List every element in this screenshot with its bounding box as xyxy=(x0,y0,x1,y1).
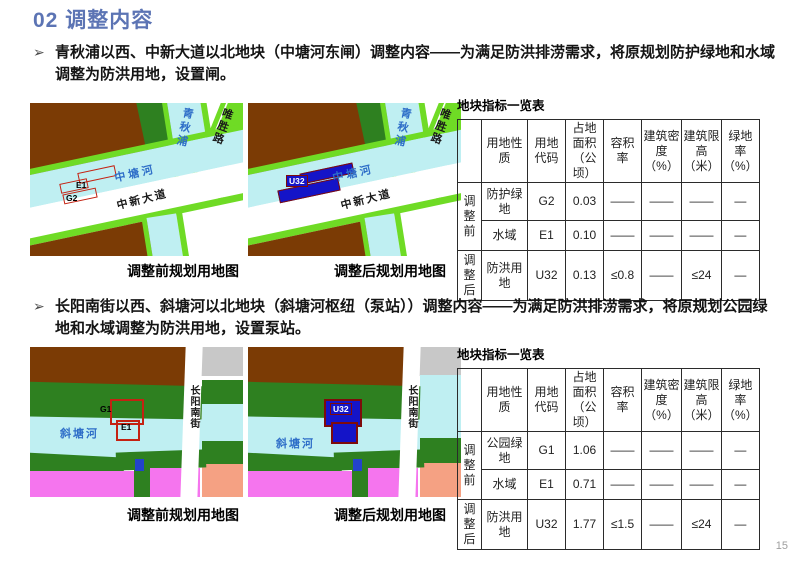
parcel-label-g2: G2 xyxy=(66,194,77,203)
table-cell: —— xyxy=(642,183,682,221)
table-cell: 0.03 xyxy=(566,183,604,221)
map-layer-cyan-right xyxy=(420,375,461,440)
table-cell: U32 xyxy=(528,251,566,301)
table-title: 地块指标一览表 xyxy=(457,95,795,114)
table-cell: —— xyxy=(642,251,682,301)
map-layer-gray xyxy=(198,347,243,376)
table-cell: —— xyxy=(604,183,642,221)
table-row: 调整前 公园绿地 G1 1.06 —— —— —— — xyxy=(458,432,760,470)
table-cell: G2 xyxy=(528,183,566,221)
table-cell: 公园绿地 xyxy=(482,432,528,470)
parcel-label-g1: G1 xyxy=(100,405,111,414)
map-layer-magenta xyxy=(248,471,356,497)
table-header: 占地面积（公顷） xyxy=(566,369,604,432)
arrow-bullet-icon: ➢ xyxy=(33,42,55,86)
table-header: 用地性质 xyxy=(482,120,528,183)
table-cell: 防洪用地 xyxy=(482,251,528,301)
table-header: 建筑限高（米） xyxy=(682,369,722,432)
map-layer-salmon xyxy=(202,464,243,497)
section1-text: 青秋浦以西、中新大道以北地块（中塘河东闸）调整内容——为满足防洪排涝需求，将原规… xyxy=(55,42,778,86)
river-label-xietanghe: 斜塘河 xyxy=(60,425,99,441)
indicator-table-district1: 地块指标一览表 用地性质 用地代码 占地面积（公顷） 容积率 建筑密度（%） 建… xyxy=(457,95,795,301)
row-group-label: 调整前 xyxy=(458,432,482,500)
table-title: 地块指标一览表 xyxy=(457,344,795,363)
indicator-table-district2: 地块指标一览表 用地性质 用地代码 占地面积（公顷） 容积率 建筑密度（%） 建… xyxy=(457,344,795,550)
arrow-bullet-icon: ➢ xyxy=(33,296,55,340)
table-header: 用地代码 xyxy=(528,120,566,183)
parcel-label-e1: E1 xyxy=(121,423,131,432)
parcel-badge-u32: U32 xyxy=(330,403,352,415)
page-number: 15 xyxy=(776,540,788,552)
table-cell: 0.13 xyxy=(566,251,604,301)
parcel-badge-u32: U32 xyxy=(286,175,308,187)
table-cell: —— xyxy=(604,221,642,251)
table-cell: — xyxy=(722,432,760,470)
road-label-changyangnanjie: 长阳南街 xyxy=(186,385,201,429)
map-layer-salmon xyxy=(420,463,461,497)
map-layer-cyan-right xyxy=(202,404,243,444)
parcel-label-e1: E1 xyxy=(76,181,86,190)
table-cell: 水域 xyxy=(482,470,528,500)
table-cell: —— xyxy=(682,183,722,221)
indicator-table: 用地性质 用地代码 占地面积（公顷） 容积率 建筑密度（%） 建筑限高（米） 绿… xyxy=(457,119,760,301)
page-title: 02 调整内容 xyxy=(33,4,153,34)
section1-paragraph: ➢ 青秋浦以西、中新大道以北地块（中塘河东闸）调整内容——为满足防洪排涝需求，将… xyxy=(33,42,778,86)
map-canvas: E1 G2 青秋浦 唯胜路 中塘河 中新大道 xyxy=(30,103,243,256)
map-caption: 调整前规划用地图 xyxy=(30,261,243,281)
table-cell: —— xyxy=(642,470,682,500)
table-header: 容积率 xyxy=(604,120,642,183)
table-corner-cell xyxy=(458,120,482,183)
table-header: 建筑限高（米） xyxy=(682,120,722,183)
table-cell: —— xyxy=(642,500,682,550)
table-row: 水域 E1 0.71 —— —— —— — xyxy=(458,470,760,500)
table-header: 用地代码 xyxy=(528,369,566,432)
flood-parcel xyxy=(331,422,358,444)
table-cell: — xyxy=(722,500,760,550)
table-cell: ≤1.5 xyxy=(604,500,642,550)
table-cell: —— xyxy=(642,221,682,251)
map-after-district2: U32 斜塘河 长阳南街 调整后规划用地图 xyxy=(248,347,461,525)
row-group-label: 调整后 xyxy=(458,500,482,550)
map-caption: 调整后规划用地图 xyxy=(248,505,461,525)
map-canvas: U32 斜塘河 长阳南街 xyxy=(248,347,461,500)
map-caption: 调整后规划用地图 xyxy=(248,261,461,281)
row-group-label: 调整前 xyxy=(458,183,482,251)
table-cell: E1 xyxy=(528,221,566,251)
map-layer-magenta xyxy=(30,471,138,497)
table-cell: —— xyxy=(682,432,722,470)
table-cell: —— xyxy=(604,432,642,470)
table-cell: G1 xyxy=(528,432,566,470)
table-cell: 0.71 xyxy=(566,470,604,500)
table-header: 占地面积（公顷） xyxy=(566,120,604,183)
table-cell: ≤24 xyxy=(682,251,722,301)
section2-text: 长阳南街以西、斜塘河以北地块（斜塘河枢纽（泵站））调整内容——为满足防洪排涝需求… xyxy=(55,296,778,340)
table-cell: E1 xyxy=(528,470,566,500)
table-cell: — xyxy=(722,251,760,301)
table-cell: 1.77 xyxy=(566,500,604,550)
map-layer-gray xyxy=(416,347,461,376)
road-label-changyangnanjie: 长阳南街 xyxy=(404,385,419,429)
sluice-marker xyxy=(135,459,144,471)
slide: 02 调整内容 ➢ 青秋浦以西、中新大道以北地块（中塘河东闸）调整内容——为满足… xyxy=(0,0,800,566)
map-caption: 调整前规划用地图 xyxy=(30,505,243,525)
table-cell: —— xyxy=(682,221,722,251)
indicator-table: 用地性质 用地代码 占地面积（公顷） 容积率 建筑密度（%） 建筑限高（米） 绿… xyxy=(457,368,760,550)
table-corner-cell xyxy=(458,369,482,432)
map-before-district2: G1 E1 斜塘河 长阳南街 调整前规划用地图 xyxy=(30,347,243,525)
table-header: 容积率 xyxy=(604,369,642,432)
map-canvas: U32 青秋浦 唯胜路 中塘河 中新大道 xyxy=(248,103,461,256)
table-cell: — xyxy=(722,183,760,221)
table-header: 绿地率（%） xyxy=(722,120,760,183)
table-cell: ≤0.8 xyxy=(604,251,642,301)
table-cell: —— xyxy=(682,470,722,500)
map-layer-green-right xyxy=(202,380,243,407)
table-cell: 防洪用地 xyxy=(482,500,528,550)
table-cell: 水域 xyxy=(482,221,528,251)
table-cell: 0.10 xyxy=(566,221,604,251)
row-group-label: 调整后 xyxy=(458,251,482,301)
table-cell: U32 xyxy=(528,500,566,550)
table-cell: 防护绿地 xyxy=(482,183,528,221)
table-cell: —— xyxy=(604,470,642,500)
table-row: 调整前 防护绿地 G2 0.03 —— —— —— — xyxy=(458,183,760,221)
section2-paragraph: ➢ 长阳南街以西、斜塘河以北地块（斜塘河枢纽（泵站））调整内容——为满足防洪排涝… xyxy=(33,296,778,340)
table-header: 用地性质 xyxy=(482,369,528,432)
sluice-marker xyxy=(353,459,362,471)
map-canvas: G1 E1 斜塘河 长阳南街 xyxy=(30,347,243,500)
map-after-district1: U32 青秋浦 唯胜路 中塘河 中新大道 调整后规划用地图 xyxy=(248,103,461,281)
table-cell: —— xyxy=(642,432,682,470)
table-cell: — xyxy=(722,221,760,251)
map-layer-green-right2 xyxy=(202,441,243,466)
table-header: 建筑密度（%） xyxy=(642,369,682,432)
table-cell: ≤24 xyxy=(682,500,722,550)
table-row: 调整后 防洪用地 U32 1.77 ≤1.5 —— ≤24 — xyxy=(458,500,760,550)
table-cell: 1.06 xyxy=(566,432,604,470)
table-row: 调整后 防洪用地 U32 0.13 ≤0.8 —— ≤24 — xyxy=(458,251,760,301)
table-header: 绿地率（%） xyxy=(722,369,760,432)
table-row: 水域 E1 0.10 —— —— —— — xyxy=(458,221,760,251)
map-before-district1: E1 G2 青秋浦 唯胜路 中塘河 中新大道 调整前规划用地图 xyxy=(30,103,243,281)
table-cell: — xyxy=(722,470,760,500)
river-label-xietanghe: 斜塘河 xyxy=(276,435,315,451)
map-layer-green-right xyxy=(420,438,461,465)
table-header: 建筑密度（%） xyxy=(642,120,682,183)
